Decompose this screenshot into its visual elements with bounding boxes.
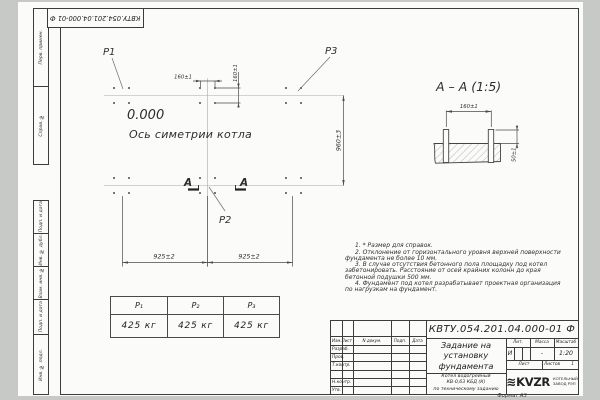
technical-notes: 1. * Размер для справок. 2. Отклонение о… — [345, 243, 569, 294]
plan-dimensions: 160±1 160±1 960±3 925±2 925±2 — [123, 64, 344, 266]
kvzr-logo-text: KVZR — [516, 375, 550, 389]
p2-label: P2 — [219, 215, 231, 226]
tb-scale-label: Масштаб — [554, 338, 578, 347]
section-letter-right: А — [239, 177, 248, 189]
loads-value-p3: 425 кг — [223, 314, 279, 337]
section-letter-left: А — [183, 177, 192, 189]
loads-table: P₁ P₂ P₃ 425 кг 425 кг 425 кг — [110, 296, 280, 338]
tb-doc-title: Задание на установку фундамента — [426, 338, 506, 373]
tb-sheets-label: Листов — [544, 362, 560, 367]
loads-header-p2: P₂ — [167, 297, 223, 314]
tb-row-prov: Пров. — [331, 353, 354, 361]
dim-925-left-label: 925±2 — [153, 254, 174, 261]
note-4: 4. Фундамент под котел разрабатывает про… — [345, 281, 569, 293]
tb-doc-title-line2: установку — [444, 350, 489, 360]
tb-scale-value: 1:20 — [554, 347, 578, 360]
tb-line — [514, 347, 515, 360]
tb-doc-title-line1: Задание на — [441, 340, 491, 350]
tb-designation: КВТУ.054.201.04.000-01 Ф — [426, 321, 578, 338]
section-cut-marks: А А — [183, 177, 248, 190]
level-mark: 0.000 — [127, 108, 164, 123]
tb-company-name: КОТЕЛЬНЫЙ ЗАВОД РЭП — [553, 377, 578, 387]
tb-mass-label: Масса — [530, 338, 554, 347]
tb-row-utv: Утв. — [331, 386, 354, 394]
tb-sheet-label: Лист — [506, 360, 542, 369]
dim-925-right-label: 925±2 — [238, 254, 259, 261]
plan-axis-lines — [104, 78, 344, 267]
tb-lit-value: И — [506, 347, 514, 360]
p1-label: P1 — [103, 47, 115, 58]
kvzr-wave-icon: ≋ — [506, 375, 516, 389]
tb-sheets-value: 1 — [571, 362, 574, 367]
section-dim-50-label: 50±1 — [512, 147, 518, 162]
tb-mass-value: - — [530, 347, 554, 360]
tb-company-cell: ≋ KVZR КОТЕЛЬНЫЙ ЗАВОД РЭП — [506, 369, 578, 394]
tb-company-line2: ЗАВОД РЭП — [553, 382, 578, 387]
title-block: КВТУ.054.201.04.000-01 Ф Изм.Лист N доку… — [330, 320, 579, 395]
tb-date-col: Дата — [409, 336, 426, 345]
dim-160v-label: 160±1 — [233, 64, 239, 82]
loads-value-p2: 425 кг — [167, 314, 223, 337]
tb-sheets-cell: Листов 1 — [542, 360, 582, 369]
note-3: 3. В случае отсутствия бетонного пола пл… — [345, 262, 569, 280]
format-note: Формат А3 — [478, 393, 546, 399]
section-dim-160-label: 160±1 — [460, 104, 478, 110]
dim-960-label: 960±3 — [336, 130, 343, 151]
tb-row-empty — [331, 370, 354, 379]
loads-header-p3: P₃ — [223, 297, 279, 314]
tb-product: Котел водогрейный КВ-0,63 КБД (К) по тех… — [426, 373, 506, 394]
note-2: 2. Отклонение от горизонтального уровня … — [345, 250, 569, 262]
tb-row-nkontr: Н.контр. — [331, 378, 354, 386]
anchor-bolt-left — [443, 130, 448, 163]
section-view: А – А (1:5) 160±1 50±1 — [434, 79, 519, 163]
tb-doc-title-line3: фундамента — [439, 361, 494, 371]
loads-header-p1: P₁ — [111, 297, 167, 314]
tb-sign-col: Подп. — [391, 336, 409, 345]
tb-line — [391, 321, 392, 394]
tb-line — [409, 321, 410, 394]
loads-value-p1: 425 кг — [111, 314, 167, 337]
tb-lit-label: Лит. — [506, 338, 530, 347]
tb-row-tkontr: Т.контр. — [331, 361, 354, 370]
axis-caption: Ось симетрии котла — [129, 128, 252, 141]
tb-change-header: Изм.Лист — [331, 336, 353, 345]
tb-doc-col: N докум. — [353, 336, 391, 345]
drawing-page: Перв. примен. Справ. № Подп. и дата Инв.… — [0, 0, 600, 400]
dim-160h-label: 160±1 — [174, 75, 192, 81]
anchor-bolt-right — [488, 130, 493, 163]
section-title: А – А (1:5) — [435, 79, 501, 94]
p3-label: P3 — [325, 46, 337, 57]
tb-line — [522, 347, 523, 360]
tb-row-razrab: Разраб. — [331, 345, 354, 353]
